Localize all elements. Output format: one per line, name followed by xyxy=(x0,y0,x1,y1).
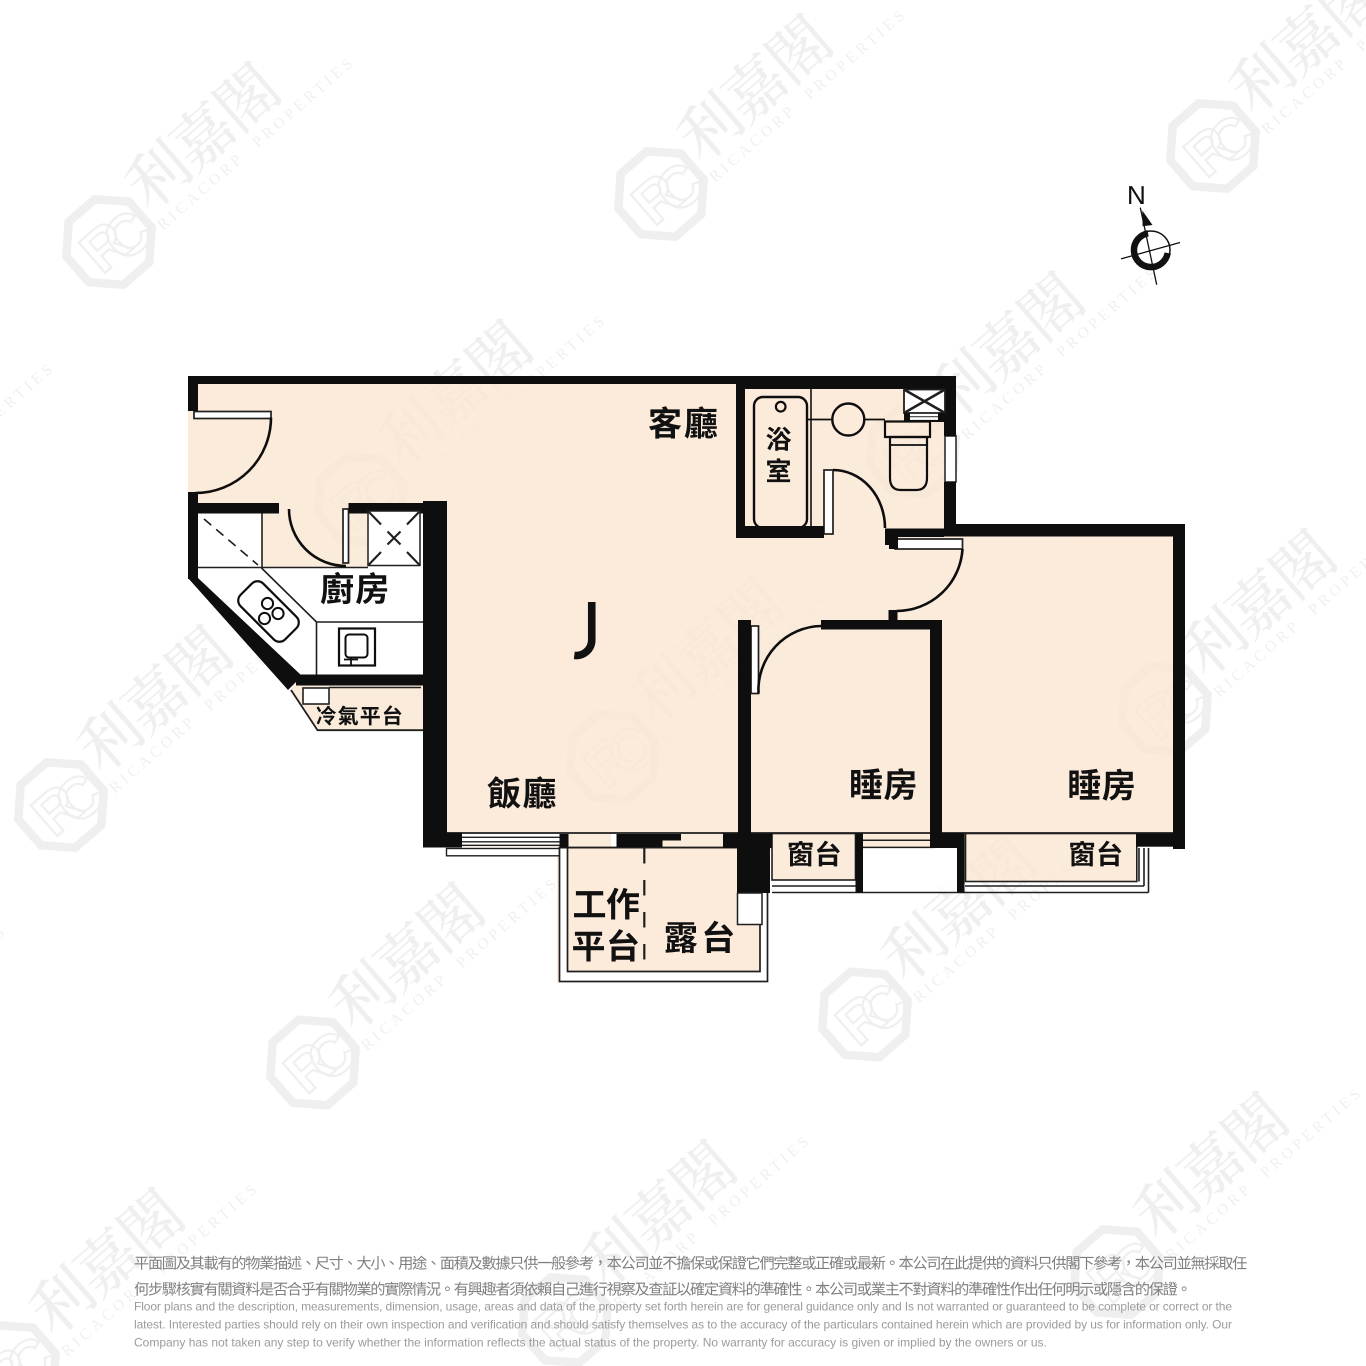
svg-text:latest. Interested parties sho: latest. Interested parties should rely o… xyxy=(134,1318,1232,1332)
svg-text:Floor plans and the descriptio: Floor plans and the description, measure… xyxy=(134,1300,1232,1314)
svg-text:Company has not taken any step: Company has not taken any step to verify… xyxy=(134,1336,1047,1350)
